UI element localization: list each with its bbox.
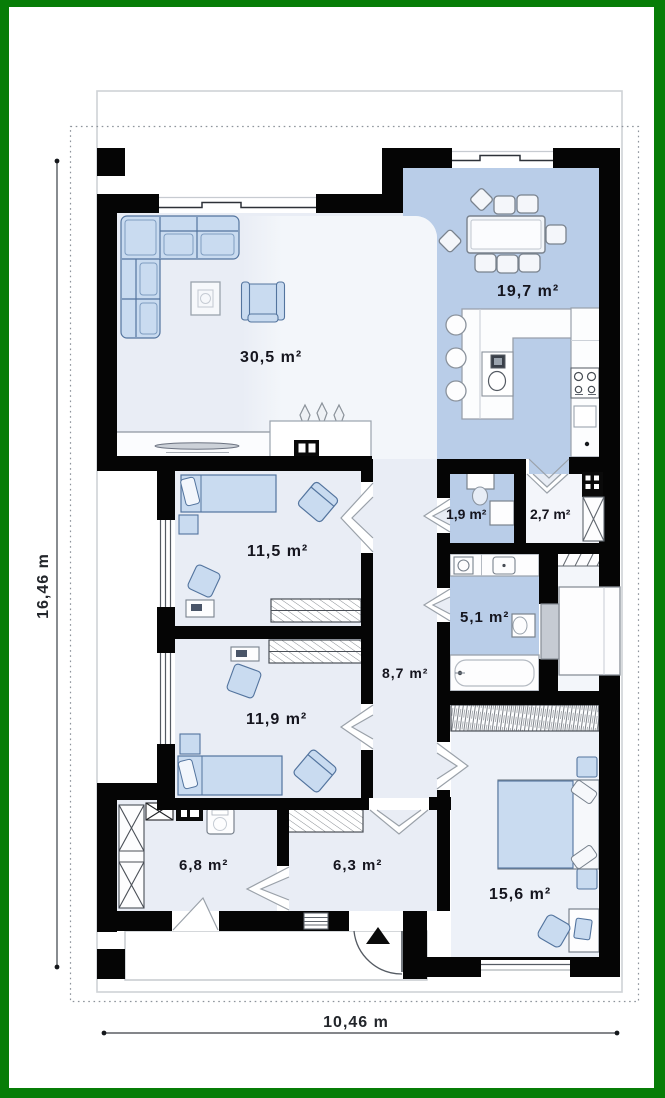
svg-text:1,9 m²: 1,9 m² — [446, 506, 487, 522]
svg-text:6,8 m²: 6,8 m² — [179, 857, 228, 874]
svg-text:11,5 m²: 11,5 m² — [247, 543, 308, 560]
svg-text:30,5 m²: 30,5 m² — [240, 349, 302, 366]
svg-text:15,6 m²: 15,6 m² — [489, 886, 551, 903]
svg-text:5,1 m²: 5,1 m² — [460, 609, 509, 626]
svg-text:2,7 m²: 2,7 m² — [530, 506, 571, 522]
svg-text:16,46 m: 16,46 m — [35, 553, 52, 619]
svg-text:6,3 m²: 6,3 m² — [333, 857, 382, 874]
svg-text:19,7 m²: 19,7 m² — [497, 283, 559, 300]
svg-text:8,7 m²: 8,7 m² — [382, 665, 428, 681]
svg-text:10,46 m: 10,46 m — [323, 1014, 389, 1031]
svg-text:11,9 m²: 11,9 m² — [246, 711, 307, 728]
